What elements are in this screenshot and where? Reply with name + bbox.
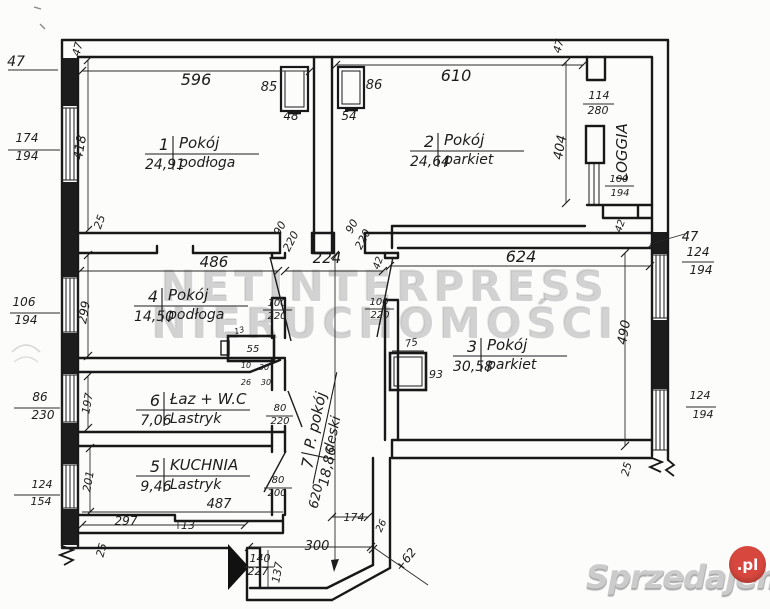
dimension-label: 13 [181, 519, 195, 532]
dimension-label: 10 [241, 361, 251, 370]
dimension-label: 194 [610, 188, 629, 199]
dimension-label: 297 [115, 514, 138, 528]
dimension-label: 154 [31, 495, 52, 508]
room-name: Pokój [444, 131, 485, 149]
dimension-label: 75 [404, 337, 418, 350]
dimension-label: 194 [690, 263, 713, 277]
dimension-label: 299 [75, 300, 93, 325]
dimension-label: 25 [619, 461, 635, 478]
room-floor: podłoga [167, 307, 224, 323]
room-number: 5 [150, 457, 160, 476]
dimension-label: 487 [207, 497, 233, 512]
room-floor: Lastryk [170, 477, 222, 493]
dimension-label: 124 [32, 478, 53, 491]
dimension-label: 194 [693, 408, 714, 421]
dimension-label: 174 [344, 511, 365, 524]
dimension-label: 47 [70, 41, 86, 58]
room-number: 6 [150, 391, 160, 410]
dimension-label: 624 [506, 247, 537, 266]
dimension-label: 86 [366, 78, 383, 93]
dimension-label: 30 [261, 378, 271, 387]
dimension-label: 418 [71, 134, 90, 161]
room-number: 1 [159, 135, 169, 154]
floorplan-scan: NETINTERPRESS NIERUCHOMOŚCI [0, 0, 770, 609]
dimension-label: 610 [441, 66, 472, 85]
dimension-label: 201 [80, 470, 96, 493]
dimension-label: 48 [283, 109, 299, 123]
room-label-room-5: 5KUCHNIA9,46Lastryk [136, 456, 250, 495]
dimension-label: 300 [305, 539, 330, 554]
dimension-label: 114 [589, 89, 610, 102]
room-label-room-4: 4Pokój14,50podłoga [134, 286, 248, 325]
room-name: Łaz + W.C [169, 390, 247, 408]
dimension-label: 174 [16, 131, 39, 145]
dimension-label: 227 [248, 565, 269, 578]
dimension-label: 42 [613, 218, 628, 234]
room-label-room-3: 3Pokój30,58parkiet [453, 336, 567, 375]
dimension-label: 124 [690, 389, 711, 402]
dimension-label: +62 [393, 545, 420, 574]
room-floor: parkiet [486, 357, 537, 373]
floorplan-drawing: 47475968548865461047114280404LOGGIA10019… [0, 0, 770, 609]
stove-symbol [390, 351, 426, 390]
room-number: 4 [148, 287, 158, 306]
dimension-label: 194 [16, 149, 39, 163]
dimension-label: 80 [274, 403, 287, 414]
dimension-label: 106 [13, 295, 36, 309]
dimension-label: 490 [615, 319, 634, 346]
dimension-label: 86 [32, 390, 48, 404]
dimension-label: 137 [269, 561, 285, 584]
room-number: 3 [467, 337, 477, 356]
dimension-label: 30 [259, 363, 269, 372]
dimension-label: 47 [7, 54, 25, 70]
dimension-label: 25 [94, 542, 110, 559]
room-label-room-7: 7P. pokój18,86deski [294, 368, 356, 488]
logo-pl-badge: .pl [729, 546, 766, 583]
dimension-label: 55 [247, 344, 260, 355]
room-label-room-6: 6Łaz + W.C7,06Lastryk [136, 390, 250, 429]
dimension-label: 54 [341, 109, 356, 123]
dimension-label: 486 [200, 253, 229, 271]
dimension-label: 100 [267, 298, 286, 309]
labels-layer: 47475968548865461047114280404LOGGIA10019… [7, 38, 713, 584]
dimension-label: 230 [32, 408, 55, 422]
room-floor: deski [321, 415, 344, 454]
room-label-room-2: 2Pokój24,64parkiet [410, 131, 524, 170]
dimension-label: 80 [272, 475, 285, 486]
room-number: 2 [424, 132, 434, 151]
dimension-label: 220 [270, 416, 289, 427]
dimension-label: 220 [267, 311, 286, 322]
radiator-symbols [281, 67, 364, 113]
room-floor: parkiet [443, 152, 494, 168]
dimension-label: 26 [374, 518, 389, 534]
dimension-label: 93 [429, 368, 443, 381]
dimension-label: 140 [250, 552, 271, 565]
sprzedajemy-logo: Sprzedajemy .pl [583, 548, 769, 606]
dimension-label: 25 [91, 213, 108, 231]
dimension-label: 124 [687, 245, 710, 259]
room-area: 9,46 [140, 479, 171, 495]
room-name: Pokój [487, 336, 528, 354]
room-name: Pokój [179, 134, 220, 152]
dimension-arrow [331, 559, 339, 572]
dimension-label: 13 [233, 325, 245, 336]
loggia-pillar [586, 126, 604, 163]
dimension-label: 404 [551, 134, 570, 161]
logo-tld: .pl [737, 556, 759, 574]
room-name: Pokój [168, 286, 209, 304]
dimension-label: 85 [261, 80, 278, 95]
room-area: 7,06 [140, 413, 171, 429]
dimension-label: 26 [241, 378, 251, 387]
dimension-label: 197 [79, 392, 95, 415]
dimension-lines [8, 60, 716, 588]
dimension-label: 200 [267, 488, 286, 499]
dimension-label: LOGGIA [613, 123, 631, 181]
dimension-label: 224 [313, 249, 342, 267]
room-floor: podłoga [178, 155, 235, 171]
dimension-label: 42 [371, 255, 386, 271]
room-floor: Lastryk [170, 411, 222, 427]
room-number: 7 [297, 455, 318, 470]
dimension-label: 220 [370, 310, 389, 321]
dimension-label: 194 [15, 313, 38, 327]
room-label-room-1: 1Pokój24,91podłoga [145, 134, 259, 173]
dimension-label: 47 [682, 230, 699, 245]
dimension-label: 596 [181, 70, 212, 89]
dimension-label: 100 [369, 297, 388, 308]
dimension-label: 280 [588, 104, 609, 117]
room-name: KUCHNIA [170, 456, 238, 474]
dimension-label: 100 [609, 174, 628, 185]
